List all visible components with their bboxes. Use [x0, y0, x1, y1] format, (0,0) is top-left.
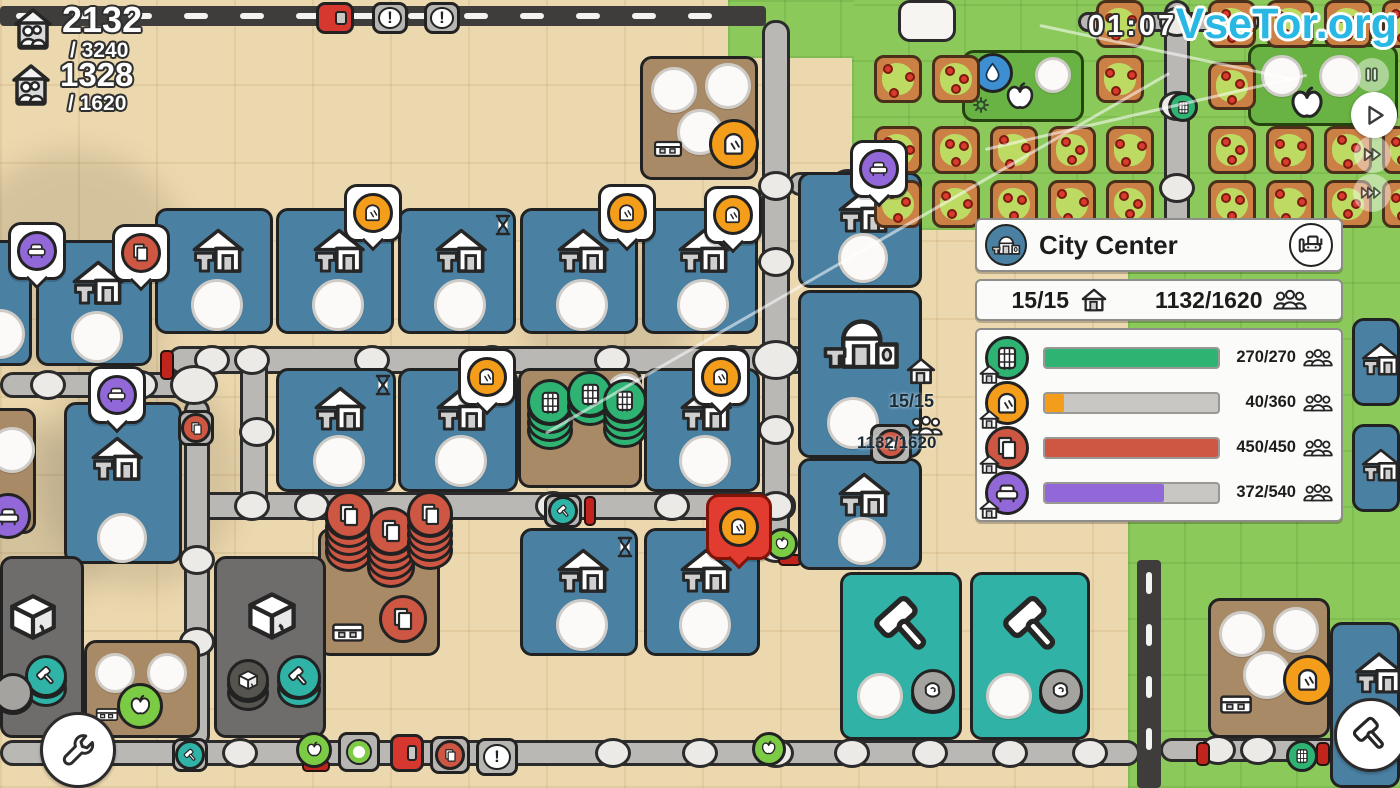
resource-bar-fill [1045, 349, 1218, 367]
demand-bubble-bread[interactable] [704, 186, 762, 244]
tile-mine[interactable] [840, 572, 962, 740]
resource-slot [0, 427, 35, 473]
exclamation-icon: ! [378, 7, 401, 29]
resource-bar-fill [1045, 439, 1218, 457]
berry-dot [889, 88, 899, 98]
berry-dot [1111, 86, 1121, 96]
road-node [758, 415, 794, 445]
road [762, 20, 790, 562]
berry-dot [1337, 191, 1347, 201]
berry-dot [951, 84, 961, 94]
delivery-truck [316, 2, 354, 34]
resource-slot [0, 309, 25, 359]
road-stopper [1316, 742, 1330, 766]
road-stopper [1196, 742, 1210, 766]
road-node [222, 738, 258, 768]
bread-chip [353, 193, 393, 233]
berry-dot [1343, 209, 1353, 219]
road-dash [1146, 728, 1152, 750]
resource-bar [1043, 482, 1220, 504]
berry-dot [1221, 137, 1231, 147]
road-node [234, 491, 270, 521]
road-node [912, 738, 948, 768]
house2-icon [1357, 337, 1400, 383]
resource-icon [985, 426, 1033, 470]
resource-slot [1219, 611, 1265, 657]
hourglass-icon [493, 213, 513, 237]
resource-slot [191, 279, 243, 331]
tile-storage[interactable] [640, 56, 758, 180]
workers-value: 1328 [60, 58, 133, 91]
demand-bubble-bread[interactable] [692, 348, 750, 406]
tile-house[interactable] [155, 208, 273, 334]
resource-icon [985, 336, 1033, 380]
house-icon [1079, 287, 1109, 313]
bread-chip [719, 507, 759, 547]
demand-bubble-couch[interactable] [850, 140, 908, 198]
house-people-icon [10, 6, 56, 52]
road-dash [576, 13, 600, 19]
resource-slot [679, 599, 731, 651]
berry-dot [883, 64, 893, 74]
tile-storage[interactable] [0, 408, 36, 534]
tile-city-center[interactable]: 15/151132/1620 [798, 290, 922, 458]
berry-dot [1121, 157, 1131, 167]
house2-icon [85, 429, 147, 491]
population-value: 2132 [62, 2, 142, 38]
house2-icon [1357, 443, 1400, 489]
resource-stack [1039, 669, 1083, 721]
truck-window [407, 745, 417, 762]
paper-chip [181, 413, 211, 443]
tile-farm[interactable] [962, 50, 1084, 122]
cargo-loading [338, 732, 380, 772]
cargo-cart [178, 410, 214, 446]
house2-icon [308, 379, 370, 441]
tile-house[interactable] [798, 458, 922, 570]
tile-storage[interactable] [1208, 598, 1330, 738]
build-pad [898, 0, 956, 42]
hammer-icon [1000, 593, 1066, 659]
resource-value: 40/360 [1230, 393, 1296, 412]
berry-dot [1235, 195, 1245, 205]
storage-bins-icon [331, 619, 365, 644]
resource-stack [325, 491, 373, 579]
resource-bar-fill [1045, 484, 1164, 502]
workers-capacity: / 1620 [68, 92, 133, 116]
berry-dot [1119, 191, 1129, 201]
road [0, 740, 1140, 766]
house2-icon [1349, 645, 1400, 703]
resource-stack [277, 655, 321, 715]
road-dash [1146, 572, 1152, 594]
berry-dot [951, 157, 961, 167]
panel-stats: 15/15 1132/1620 [975, 279, 1343, 321]
crop-plot[interactable] [1096, 55, 1144, 103]
berry-dot [1137, 141, 1147, 151]
resource-slot [556, 279, 608, 331]
resource-slot [97, 513, 147, 563]
berry-dot [1275, 139, 1285, 149]
resource-slot [556, 599, 608, 651]
resource-stack [911, 669, 955, 721]
berry-dot [1337, 135, 1347, 145]
resource-slot [986, 673, 1032, 719]
berry-dot [1003, 193, 1013, 203]
resource-value: 450/450 [1230, 438, 1296, 457]
demand-bubble-bread[interactable] [706, 494, 772, 560]
tile-factory[interactable] [0, 556, 84, 738]
tile-storage[interactable] [318, 528, 440, 656]
apple-icon [1003, 81, 1037, 115]
demand-bubble-bread[interactable] [344, 184, 402, 242]
cargo-apple [752, 732, 786, 766]
people-icon [1303, 437, 1333, 459]
berry-dot [1227, 95, 1237, 105]
berry-dot [1281, 157, 1291, 167]
resource-bar-fill [1045, 394, 1064, 412]
resource-slot [71, 311, 123, 363]
delivery-truck [390, 734, 424, 772]
road-dash [688, 13, 712, 19]
resource-row: 40/360 [985, 380, 1333, 425]
hourglass-icon [615, 535, 635, 559]
hammer-chip [175, 740, 205, 770]
building-stat-label: 1132/1620 [857, 433, 936, 453]
tile-mine[interactable] [970, 572, 1090, 740]
berry-dot [1391, 137, 1400, 147]
resource-slot [313, 435, 365, 487]
speed-fastest-forward-button[interactable] [1353, 174, 1391, 212]
house-icon [978, 499, 1001, 520]
cargo-barrel [1286, 740, 1318, 772]
crop-plot[interactable] [1208, 126, 1256, 174]
paper-chip [325, 491, 373, 539]
road-stopper [584, 496, 596, 526]
berry-dot [1079, 197, 1089, 207]
berry-dot [1343, 159, 1353, 169]
people-icon [1273, 287, 1307, 313]
tile-house[interactable] [398, 208, 516, 334]
site-watermark: VseTor.org [1176, 0, 1397, 49]
tool-cursor-wrench[interactable] [40, 712, 116, 788]
berry-dot [959, 74, 969, 84]
demolish-button[interactable] [1289, 223, 1333, 267]
loading-ring-icon [346, 739, 372, 765]
city-center-icon [985, 224, 1027, 266]
alert-cart: ! [476, 738, 518, 776]
berry-dot [945, 66, 955, 76]
alert-cart: ! [372, 2, 408, 34]
crop-plot[interactable] [1266, 126, 1314, 174]
resource-slot [651, 67, 697, 113]
resource-slot [435, 435, 487, 487]
resource-slot [1273, 607, 1319, 653]
people-icon [1303, 347, 1333, 369]
road-node [1240, 735, 1276, 765]
population-counter: 2132 / 3240 [10, 2, 142, 63]
tile-factory[interactable] [214, 556, 326, 738]
demand-bubble-paper[interactable] [112, 224, 170, 282]
hammer-chip [277, 655, 321, 699]
berry-dot [1297, 197, 1307, 207]
resource-slot [838, 517, 886, 565]
road-node [595, 738, 631, 768]
road-node [234, 345, 270, 375]
apple-icon [1287, 85, 1327, 125]
paper-chip [379, 595, 427, 643]
resource-slot [434, 279, 486, 331]
road-node [179, 545, 215, 575]
people-icon [1303, 482, 1333, 504]
population-count: 1132/1620 [1155, 287, 1262, 314]
crop-plot[interactable] [1106, 126, 1154, 174]
road-node [992, 738, 1028, 768]
crop-plot[interactable] [932, 126, 980, 174]
road-node [30, 370, 66, 400]
berry-dot [1067, 155, 1077, 165]
exclamation-icon: ! [483, 744, 511, 771]
resource-icon [985, 471, 1033, 515]
resource-slot [1035, 57, 1071, 93]
resource-bar [1043, 437, 1220, 459]
resource-bar [1043, 347, 1220, 369]
resource-slot [857, 673, 903, 719]
demand-bubble-couch[interactable] [8, 222, 66, 280]
resource-slot [705, 63, 751, 109]
resource-value: 270/270 [1230, 348, 1296, 367]
berry-dot [945, 139, 955, 149]
resource-stack [407, 491, 453, 577]
house-people-icon [8, 62, 54, 108]
game-viewport: 15/151132/1620!!! 2132 / 3240 1328 / 162… [0, 0, 1400, 788]
bread-chip [467, 357, 507, 397]
panel-header: City Center [975, 218, 1343, 272]
paper-chip [435, 740, 465, 770]
hammer-icon [871, 593, 937, 659]
building-stat-label: 15/15 [889, 391, 934, 412]
berry-dot [959, 141, 969, 151]
bread-chip [607, 193, 647, 233]
road-node [752, 340, 800, 380]
resource-stack [227, 659, 269, 717]
bread-chip [709, 119, 759, 169]
resource-row: 450/450 [985, 425, 1333, 470]
resource-slot [312, 279, 364, 331]
road-node [834, 738, 870, 768]
berry-dot [1057, 189, 1067, 199]
stone-chip [1039, 669, 1083, 713]
road-node [170, 365, 218, 405]
cargo-cart [544, 494, 582, 528]
berry-dot [1115, 139, 1125, 149]
tile-house[interactable] [1352, 318, 1400, 406]
road-dash [632, 13, 656, 19]
box3d-icon [7, 591, 59, 643]
storage-bins-icon [653, 137, 683, 159]
hammer-chip [548, 496, 578, 526]
road-dash [520, 13, 544, 19]
resource-slot [677, 279, 729, 331]
tile-house[interactable] [276, 368, 396, 492]
house2-icon [429, 221, 491, 283]
people-icon [1303, 392, 1333, 414]
berry-dot [1221, 71, 1231, 81]
box3d-icon [245, 589, 299, 643]
resource-row: 270/270 [985, 335, 1333, 380]
tile-house[interactable] [520, 528, 638, 656]
road-dash [184, 13, 208, 19]
bread-chip [701, 357, 741, 397]
resource-value: 372/540 [1230, 483, 1296, 502]
road-dash [1146, 624, 1152, 646]
cargo-apple [296, 732, 332, 768]
resource-icon [985, 381, 1033, 425]
berry-dot [1297, 141, 1307, 151]
road-node [654, 491, 690, 521]
speed-fast-forward-button[interactable] [1354, 136, 1391, 173]
tile-house[interactable] [1352, 424, 1400, 512]
berry-dot [1227, 155, 1237, 165]
berry-dot [1275, 189, 1285, 199]
cargo-cart [172, 738, 208, 772]
crop-plot[interactable] [874, 55, 922, 103]
demand-bubble-bread[interactable] [598, 184, 656, 242]
berry-dot [1391, 193, 1400, 203]
resource-row: 372/540 [985, 470, 1333, 515]
berry-dot [893, 213, 903, 223]
bread-chip [713, 195, 753, 235]
speed-play-button[interactable] [1351, 92, 1397, 138]
resource-bar [1043, 392, 1220, 414]
houses-count: 15/15 [1011, 287, 1069, 314]
berry-dot [1133, 199, 1143, 209]
alert-cart: ! [424, 2, 460, 34]
highway-road [1137, 560, 1161, 788]
berry-dot [1221, 193, 1231, 203]
couch-chip [97, 375, 137, 415]
berry-dot [1017, 195, 1027, 205]
exclamation-icon: ! [430, 7, 453, 29]
apple-chip [117, 683, 163, 729]
road-stopper [160, 350, 174, 380]
box3d-chip [227, 659, 269, 701]
road-dash [240, 13, 264, 19]
storage-bins-icon [1219, 691, 1253, 716]
road-node [682, 738, 718, 768]
stone-chip [911, 669, 955, 713]
panel-resources: 270/27040/360450/450372/540 [975, 328, 1343, 522]
cargo-cart [430, 736, 470, 774]
paper-chip [407, 491, 453, 537]
city-center-panel: City Center 15/15 1132/1620 270/27040/36… [975, 218, 1343, 522]
house2-icon [186, 221, 248, 283]
berry-dot [1105, 68, 1115, 78]
road-node [758, 247, 794, 277]
truck-window [335, 11, 347, 25]
berry-dot [905, 72, 915, 82]
bread-chip [1283, 655, 1333, 705]
demand-bubble-couch[interactable] [88, 366, 146, 424]
road-dash [464, 13, 488, 19]
couch-chip [17, 231, 57, 271]
couch-chip [0, 493, 31, 539]
berry-dot [963, 199, 973, 209]
game-timer: 01:07 [1088, 10, 1177, 43]
berry-dot [947, 209, 957, 219]
berry-dot [1075, 145, 1085, 155]
road-node [1072, 738, 1108, 768]
panel-title: City Center [1039, 230, 1289, 261]
road-dash [1146, 676, 1152, 698]
road-node [1159, 173, 1195, 203]
demand-bubble-bread[interactable] [458, 348, 516, 406]
crop-plot[interactable] [932, 55, 980, 103]
dome-icon [821, 303, 901, 383]
road-node [239, 417, 275, 447]
hourglass-icon [373, 373, 393, 397]
road-node [758, 171, 794, 201]
berry-dot [1127, 70, 1137, 80]
resource-stack [0, 673, 33, 721]
berry-dot [1061, 137, 1071, 147]
couch-chip [859, 149, 899, 189]
berry-dot [901, 197, 911, 207]
house1-icon [905, 355, 937, 387]
workers-counter: 1328 / 1620 [8, 58, 133, 116]
paper-chip [121, 233, 161, 273]
resource-slot [679, 435, 731, 487]
speed-pause-button[interactable] [1355, 58, 1389, 92]
berry-dot [1235, 145, 1245, 155]
house2-icon [551, 541, 613, 603]
resource-stack [603, 379, 647, 455]
tool-cursor-hammer[interactable] [1334, 698, 1400, 772]
